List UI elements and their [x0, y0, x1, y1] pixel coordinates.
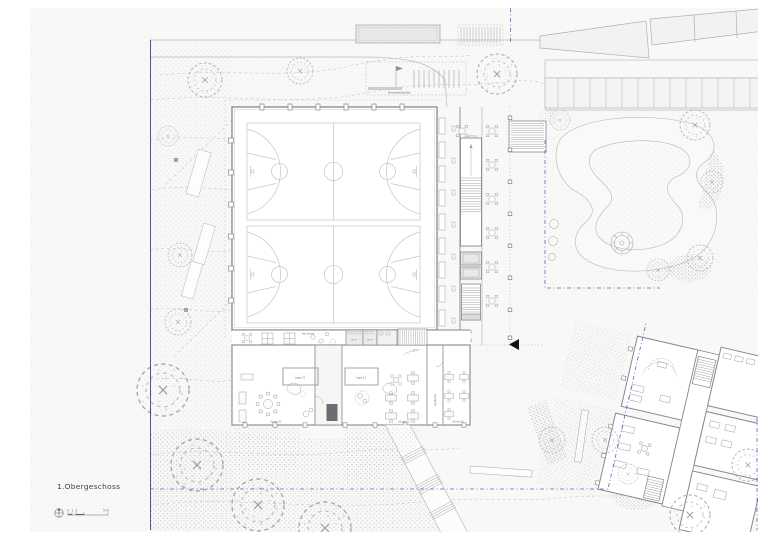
plan-title: 1.Obergeschoss	[57, 482, 120, 491]
floor-plan-page: Fahrradabstellplätze	[0, 0, 780, 551]
scale-0: 0	[67, 509, 69, 513]
kinder02-label: Kinder 02	[398, 421, 410, 424]
kinder01-label: Kinder 01	[270, 421, 282, 424]
scale-5m: 5 m	[103, 509, 109, 513]
scale-1: 1	[71, 509, 73, 513]
bike-parking-label: Fahrradabstellplätze	[388, 92, 411, 95]
meadow-west	[30, 8, 151, 532]
exterior-stair-ne	[509, 121, 546, 152]
scale-2: 2	[75, 509, 77, 513]
parking-row	[545, 60, 780, 108]
lager10-label: Lager 10	[295, 377, 306, 380]
kinder03-label: Kinder 03	[452, 421, 464, 424]
classroom-wing: Lernräume WC D WC H +0.50	[232, 329, 470, 427]
floor-plan-canvas: Fahrradabstellplätze	[0, 0, 780, 551]
entry-door-recess	[327, 404, 338, 421]
wc-h-label: WC H	[367, 340, 373, 342]
garderobe-label: Garderobe	[434, 393, 437, 406]
stair-core: Treppenhaus	[461, 135, 482, 321]
sports-hall	[225, 100, 442, 340]
playground	[538, 107, 758, 290]
lager11-label: Lager 11	[356, 377, 367, 380]
wc-d-label: WC D	[351, 340, 357, 342]
lernraeume-label: Lernräume	[302, 333, 315, 336]
